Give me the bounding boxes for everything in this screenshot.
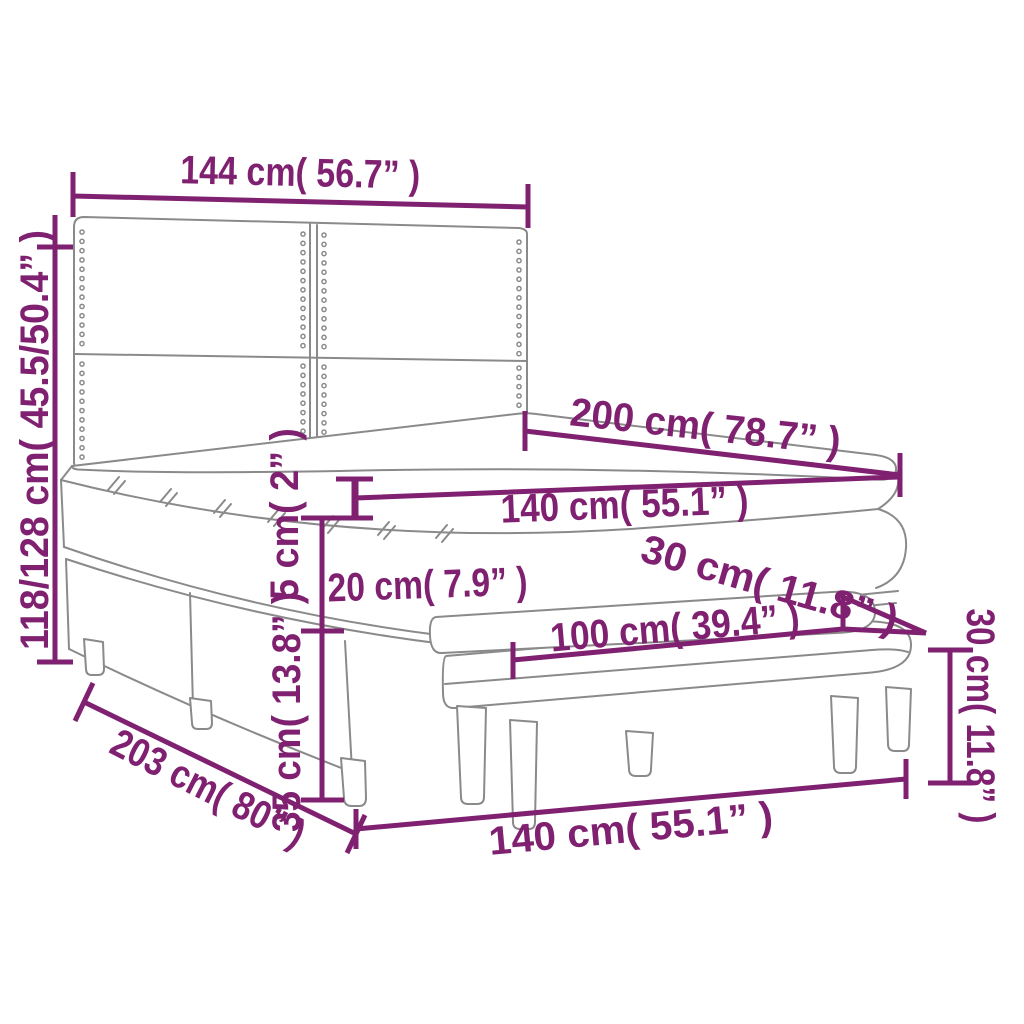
bench-height-label: 30 cm( 11.8” ) [958,609,1002,824]
topper-thickness-label: 5 cm( 2” ) [263,428,307,600]
bench-front-leg [457,706,486,804]
headboard-width-label: 144 cm( 56.7” ) [180,148,421,197]
boxspring-height-label: 20 cm( 7.9” ) [327,560,528,611]
bed-leg [341,758,366,806]
bed-leg [84,639,104,675]
bench-back-leg [886,687,911,751]
mattress-topper-seam [61,480,878,533]
base-panel-seam [190,593,193,707]
base-left-edge [66,559,69,649]
bench-back-leg [626,731,653,776]
bed-dimension-diagram: 144 cm( 56.7” ) 118/128 cm( 45.5/50.4” )… [0,0,1024,1024]
mattress-topper-left-edge [61,466,72,480]
boxspring-foot-corner [876,509,906,588]
bench-back-leg [831,696,858,773]
base-front-corner-edge [345,641,352,771]
diagram-page: 144 cm( 56.7” ) 118/128 cm( 45.5/50.4” )… [0,0,1024,1024]
bed-leg [190,698,212,729]
overall-height-label: 118/128 cm( 45.5/50.4” ) [13,230,57,650]
boxspring-left-edge [61,480,64,547]
